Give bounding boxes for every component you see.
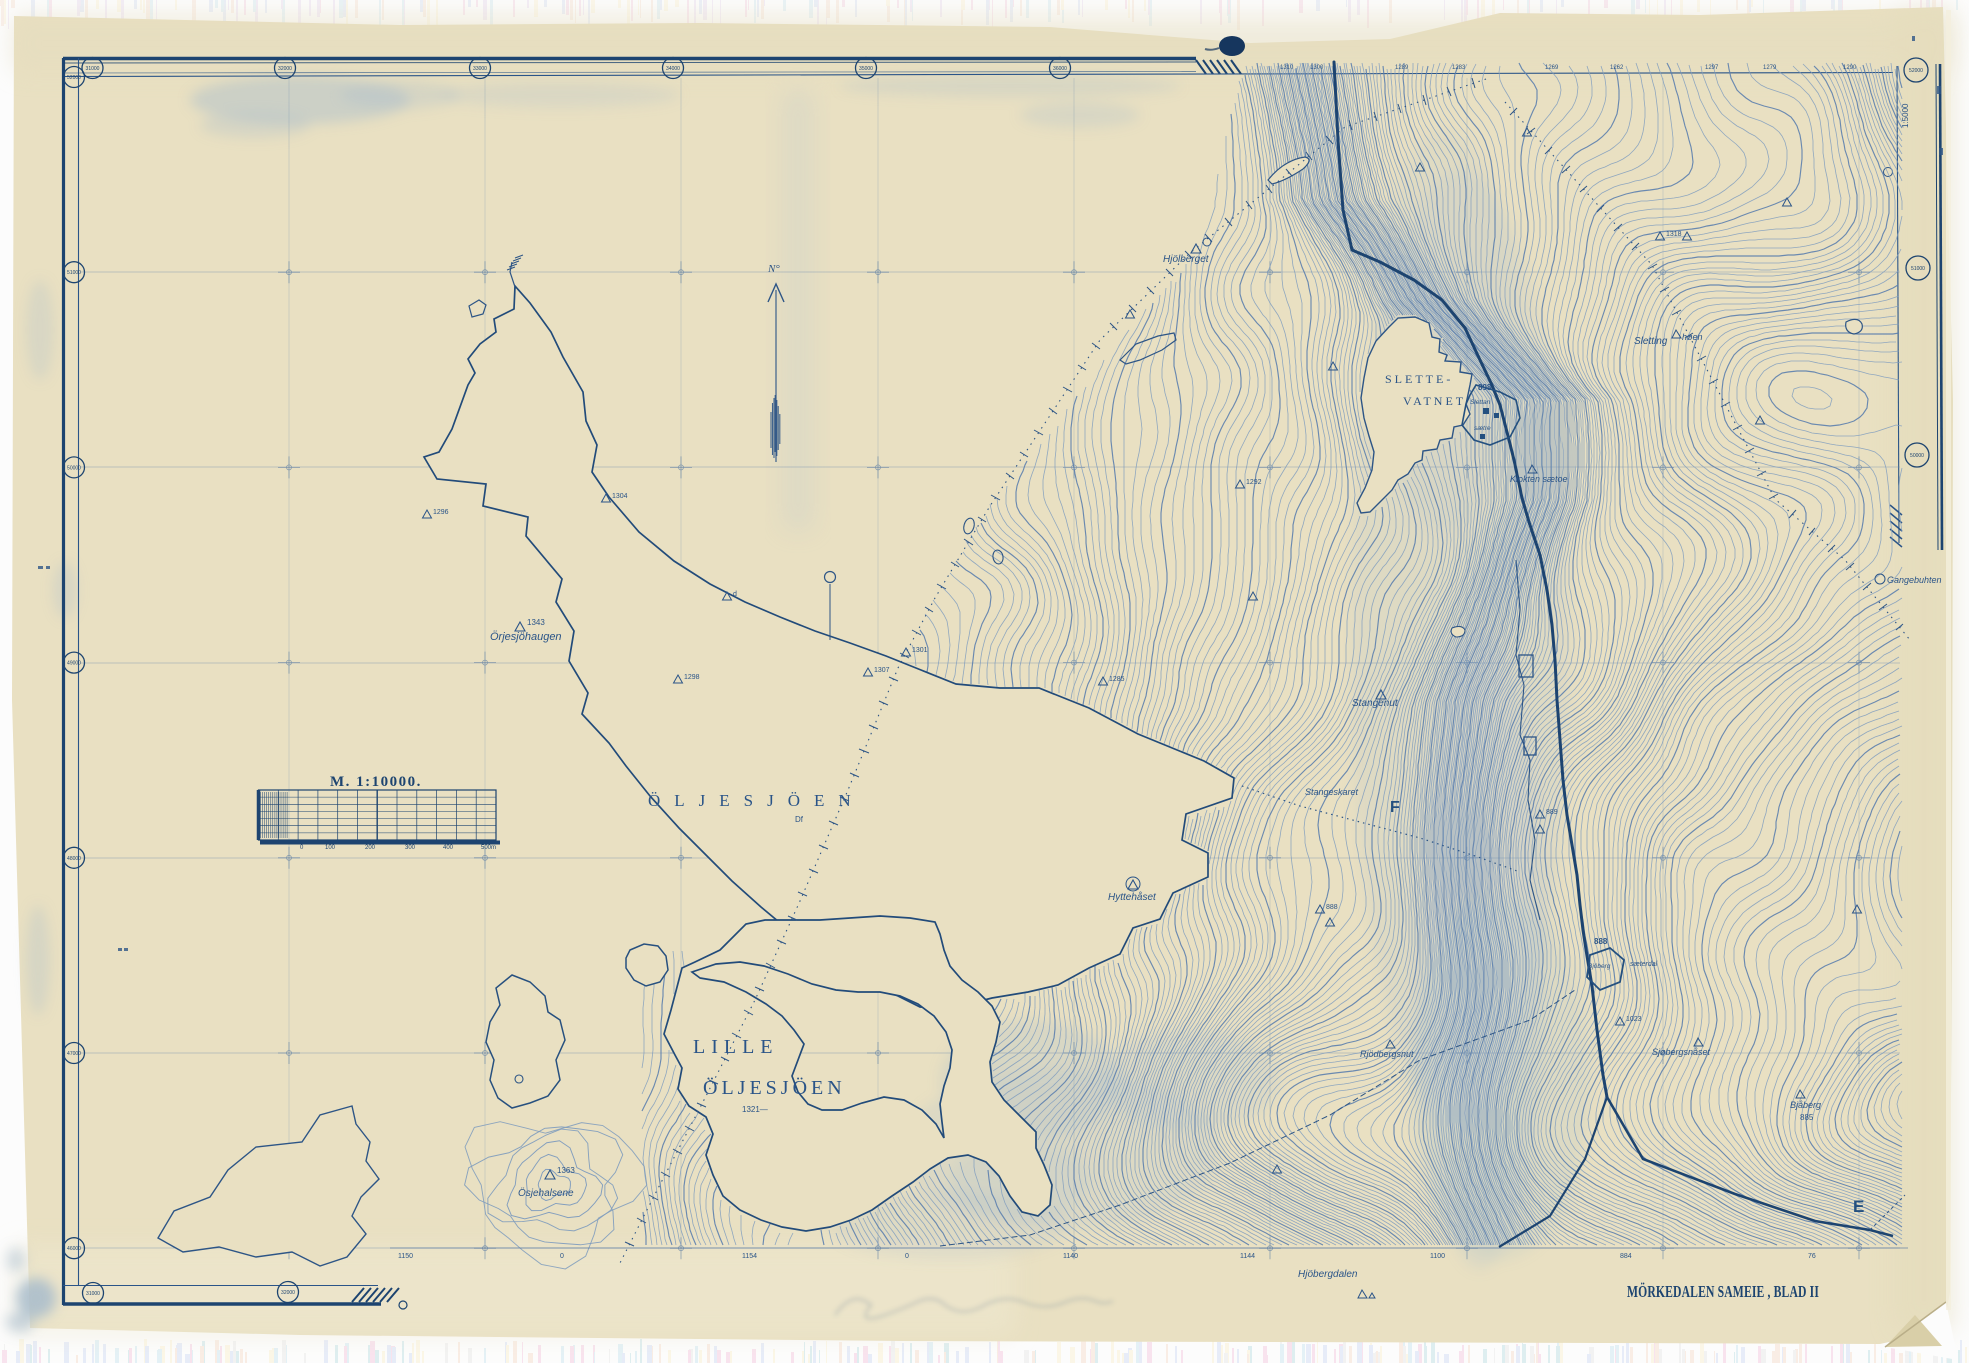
svg-text:Stangenut: Stangenut [1352,698,1399,709]
svg-text:F: F [1390,799,1400,816]
svg-text:888: 888 [1594,937,1608,946]
svg-text:1:5000: 1:5000 [1901,103,1910,128]
svg-text:48000: 48000 [67,856,81,862]
svg-text:høen: høen [1682,332,1703,342]
svg-text:1298: 1298 [684,674,700,681]
svg-text:52000: 52000 [1909,68,1923,74]
svg-text:1307: 1307 [874,667,890,674]
svg-text:33000: 33000 [473,66,487,72]
svg-text:1343: 1343 [527,618,545,627]
svg-text:400: 400 [443,845,454,851]
svg-text:1289: 1289 [1395,65,1409,71]
svg-text:200: 200 [365,845,376,851]
svg-text:Slettan: Slettan [1470,399,1491,406]
svg-text:Hyttehåset: Hyttehåset [1108,891,1157,903]
svg-text:76: 76 [1808,1253,1816,1260]
svg-text:1363: 1363 [557,1166,575,1175]
svg-text:N°: N° [767,263,780,275]
svg-text:Hjöbergdalen: Hjöbergdalen [1298,1269,1358,1280]
svg-text:1023: 1023 [1626,1016,1642,1023]
svg-text:sæterdal: sæterdal [1630,961,1658,968]
svg-text:1262: 1262 [1610,65,1624,71]
svg-text:d: d [733,591,737,598]
svg-text:Sjøbergsnåset: Sjøbergsnåset [1652,1047,1711,1057]
svg-text:1297: 1297 [1705,65,1719,71]
svg-text:Gangebuhten: Gangebuhten [1887,575,1942,585]
svg-text:51000: 51000 [67,270,81,276]
svg-text:Df: Df [795,815,804,824]
svg-text:1154: 1154 [742,1253,757,1260]
svg-text:M. 1:10000.: M. 1:10000. [330,774,422,790]
svg-text:1279: 1279 [1763,65,1777,71]
svg-text:36000: 36000 [1053,66,1067,72]
svg-text:885: 885 [1800,1113,1814,1122]
svg-text:MÖRKEDALEN SAMEIE , BLAD II: MÖRKEDALEN SAMEIE , BLAD II [1627,1282,1819,1301]
svg-text:32000: 32000 [281,1290,295,1296]
svg-text:Klokten sætoe: Klokten sætoe [1510,474,1568,484]
svg-text:51000: 51000 [1911,266,1925,272]
svg-text:1140: 1140 [1063,1253,1078,1260]
svg-text:1150: 1150 [398,1253,413,1260]
svg-text:46000: 46000 [67,1246,81,1252]
svg-text:E: E [1853,1197,1864,1216]
svg-text:1144: 1144 [1240,1253,1255,1260]
svg-text:ÖLJESJÖEN: ÖLJESJÖEN [648,791,865,810]
svg-text:35000: 35000 [859,66,873,72]
svg-text:50000: 50000 [67,465,81,471]
svg-text:52000: 52000 [67,75,81,81]
svg-text:0: 0 [905,1253,909,1260]
svg-text:31000: 31000 [86,66,100,72]
svg-text:1290: 1290 [1843,65,1857,71]
svg-text:VATNET: VATNET [1403,394,1466,408]
svg-text:1296: 1296 [433,509,449,516]
svg-text:884: 884 [1620,1253,1632,1260]
svg-text:49000: 49000 [67,661,81,667]
svg-text:100: 100 [325,845,336,851]
svg-text:1100: 1100 [1430,1253,1445,1260]
svg-text:500m: 500m [481,845,496,851]
svg-text:sætre: sætre [1474,425,1491,432]
svg-text:1321—: 1321— [742,1105,768,1114]
svg-text:1300: 1300 [1310,65,1324,71]
svg-text:34000: 34000 [666,66,680,72]
svg-text:31000: 31000 [86,1291,100,1297]
svg-text:1318: 1318 [1666,231,1682,238]
svg-text:Hjölberget: Hjölberget [1163,254,1210,265]
svg-text:1310: 1310 [1280,65,1294,71]
svg-text:50000: 50000 [1910,453,1924,459]
svg-text:ÖLJESJÖEN: ÖLJESJÖEN [703,1076,846,1099]
svg-text:32000: 32000 [278,66,292,72]
svg-text:888: 888 [1326,904,1338,911]
svg-text:Rjödbergsnut: Rjödbergsnut [1360,1049,1414,1059]
svg-text:Ösjehalsene: Ösjehalsene [518,1187,574,1199]
svg-text:1304: 1304 [612,493,628,500]
svg-text:1269: 1269 [1545,65,1559,71]
svg-text:SLETTE-: SLETTE- [1385,372,1453,386]
svg-text:Stangeskaret: Stangeskaret [1305,787,1359,797]
svg-text:898: 898 [1478,383,1492,392]
svg-text:Bjöberg: Bjöberg [1588,963,1611,970]
svg-text:1292: 1292 [1246,479,1262,486]
svg-text:47000: 47000 [67,1051,81,1057]
svg-text:1283: 1283 [1452,65,1466,71]
svg-text:1285: 1285 [1109,676,1125,683]
svg-text:Bjåberg: Bjåberg [1790,1100,1821,1110]
svg-text:LILLE: LILLE [693,1036,779,1058]
svg-text:300: 300 [405,845,416,851]
svg-text:Örjesjöhaugen: Örjesjöhaugen [490,631,562,643]
svg-text:889: 889 [1546,809,1558,816]
svg-text:0: 0 [560,1253,564,1260]
svg-text:1301: 1301 [912,647,928,654]
svg-text:Sletting: Sletting [1634,336,1668,347]
